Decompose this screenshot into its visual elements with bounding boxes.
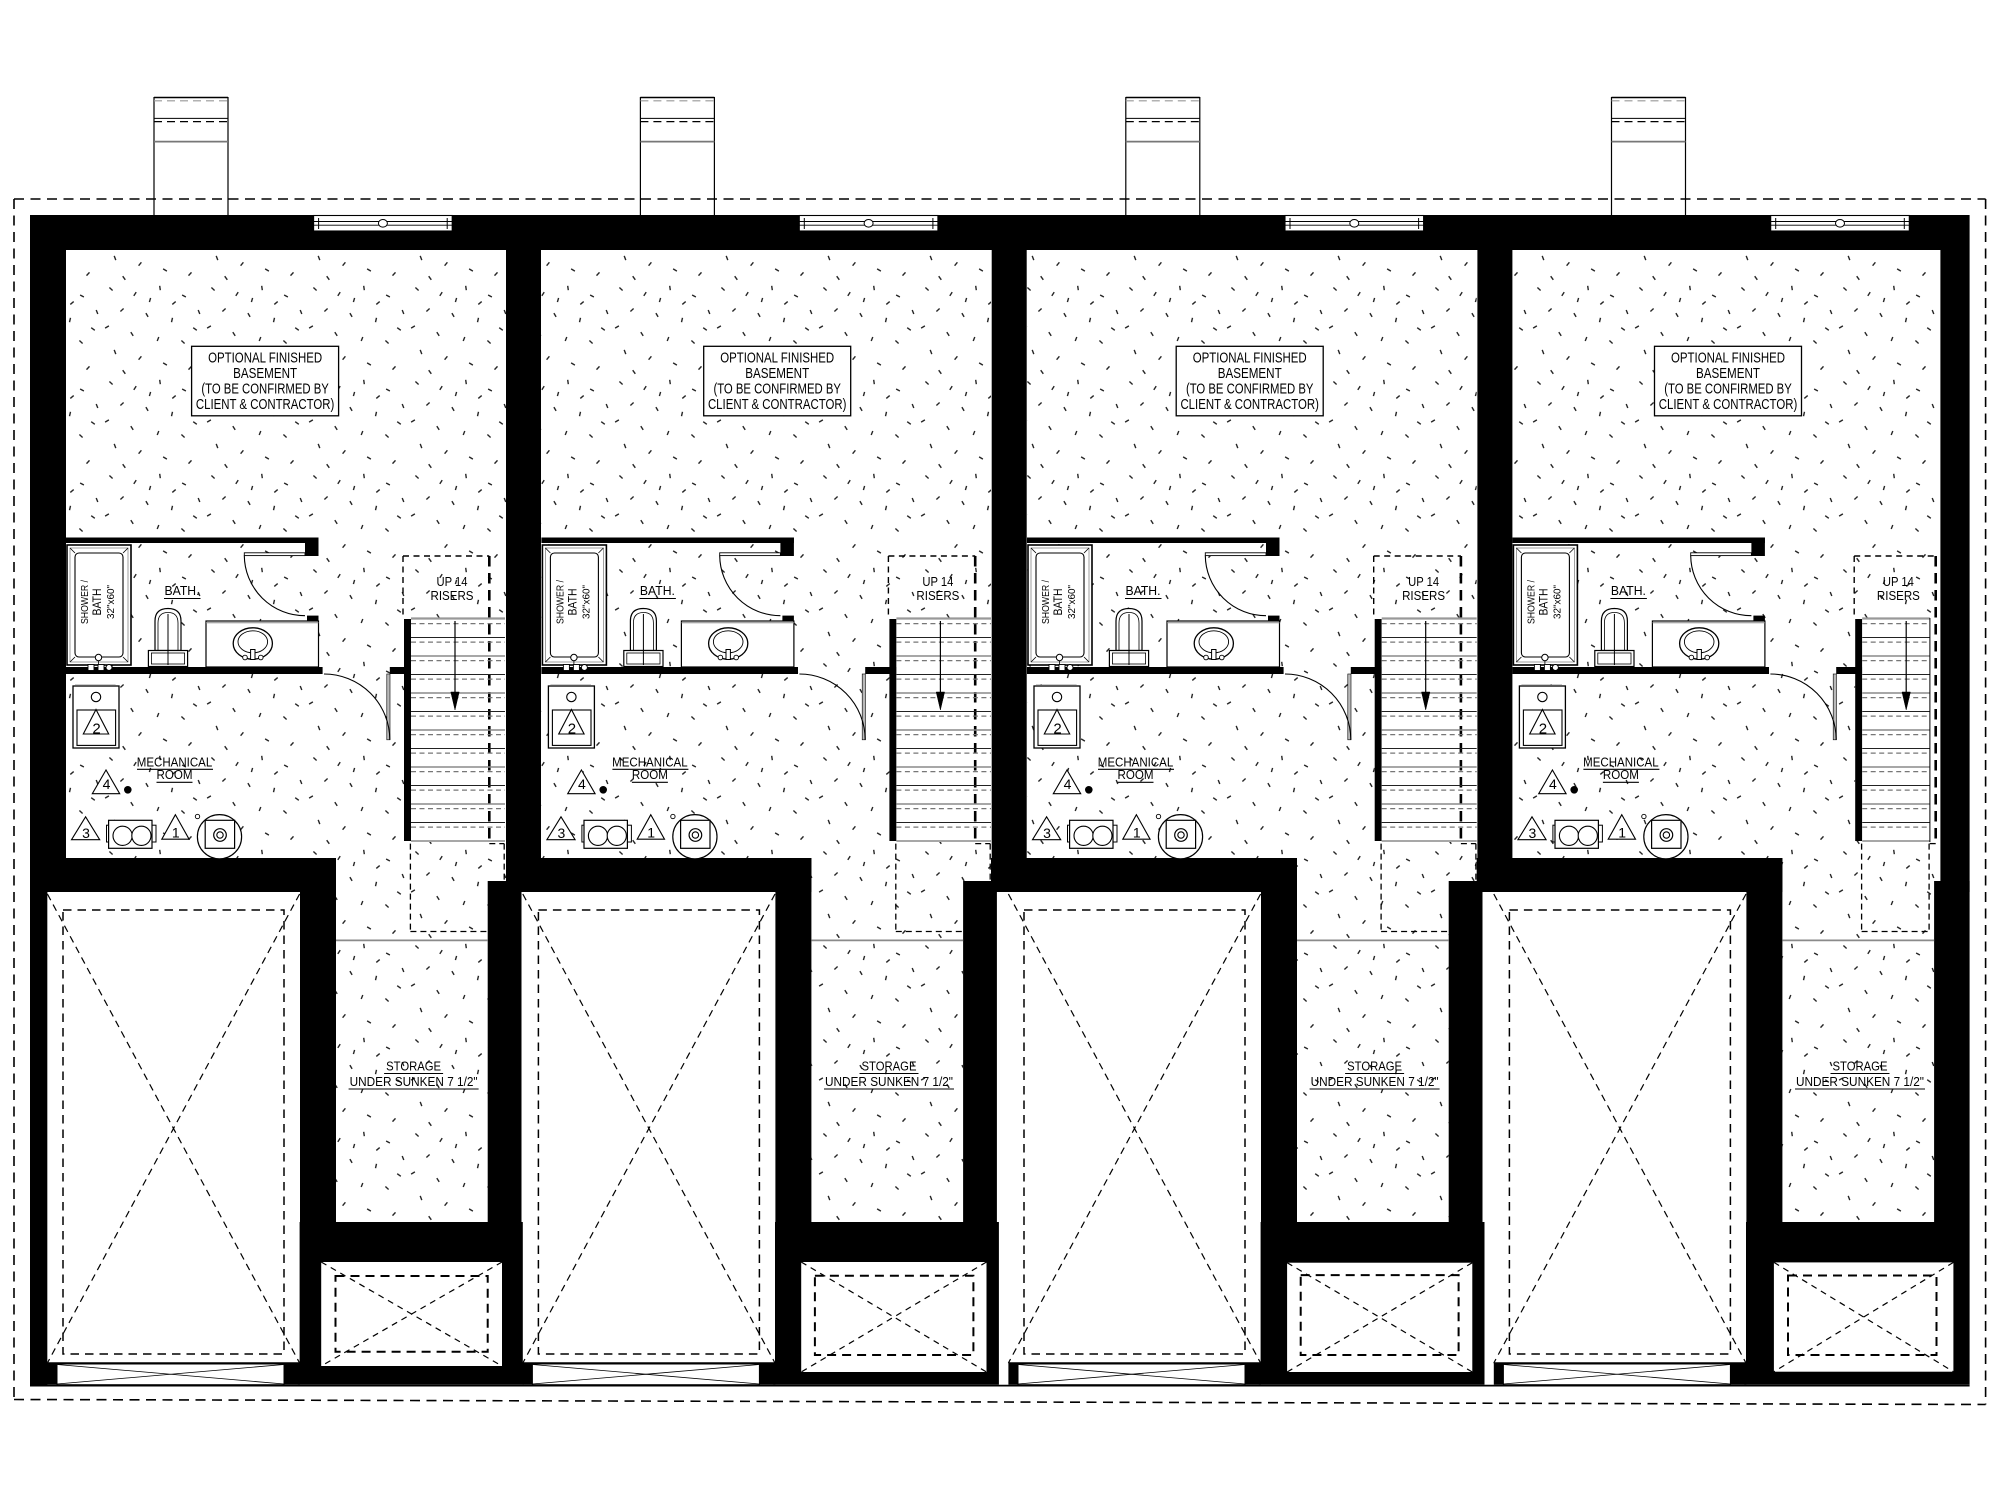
svg-text:BATH: BATH [567, 589, 579, 616]
svg-text:CLIENT & CONTRACTOR): CLIENT & CONTRACTOR) [1180, 397, 1319, 413]
svg-text:SHOWER /: SHOWER / [79, 580, 91, 624]
svg-text:RISERS: RISERS [1877, 589, 1920, 603]
svg-text:RISERS: RISERS [431, 589, 474, 603]
svg-text:ROOM: ROOM [157, 768, 193, 782]
svg-text:ROOM: ROOM [632, 768, 668, 782]
svg-text:4: 4 [1064, 776, 1072, 792]
svg-text:(TO BE CONFIRMED BY: (TO BE CONFIRMED BY [713, 382, 841, 398]
svg-text:(TO BE CONFIRMED BY: (TO BE CONFIRMED BY [1186, 382, 1314, 398]
svg-text:1: 1 [647, 825, 655, 841]
svg-text:BATH: BATH [1538, 589, 1550, 616]
svg-text:OPTIONAL FINISHED: OPTIONAL FINISHED [1193, 351, 1307, 367]
svg-text:SHOWER /: SHOWER / [1525, 580, 1537, 624]
svg-text:BATH.: BATH. [165, 584, 200, 598]
svg-text:CLIENT & CONTRACTOR): CLIENT & CONTRACTOR) [196, 397, 335, 413]
svg-text:32"x60": 32"x60" [106, 585, 117, 619]
svg-text:OPTIONAL FINISHED: OPTIONAL FINISHED [208, 351, 322, 367]
svg-text:BATH.: BATH. [1611, 584, 1646, 598]
svg-text:BATH.: BATH. [640, 584, 675, 598]
svg-text:4: 4 [103, 776, 111, 792]
svg-text:BASEMENT: BASEMENT [1218, 366, 1282, 382]
svg-text:UP 14: UP 14 [437, 575, 468, 589]
svg-text:2: 2 [568, 721, 576, 738]
svg-text:RISERS: RISERS [916, 589, 959, 603]
svg-text:CLIENT & CONTRACTOR): CLIENT & CONTRACTOR) [708, 397, 847, 413]
svg-text:UNDER SUNKEN 7 1/2": UNDER SUNKEN 7 1/2" [350, 1074, 478, 1089]
svg-text:OPTIONAL FINISHED: OPTIONAL FINISHED [720, 351, 834, 367]
svg-text:2: 2 [92, 721, 100, 738]
svg-text:(TO BE CONFIRMED BY: (TO BE CONFIRMED BY [1664, 382, 1792, 398]
svg-text:1: 1 [1618, 825, 1626, 841]
svg-text:BATH: BATH [1053, 589, 1065, 616]
svg-text:BASEMENT: BASEMENT [1696, 366, 1760, 382]
svg-text:STORAGE: STORAGE [386, 1059, 441, 1074]
svg-text:(TO BE CONFIRMED BY: (TO BE CONFIRMED BY [201, 382, 329, 398]
svg-text:STORAGE: STORAGE [862, 1059, 917, 1074]
svg-text:ROOM: ROOM [1118, 768, 1154, 782]
svg-text:STORAGE: STORAGE [1347, 1059, 1402, 1074]
svg-text:4: 4 [578, 776, 586, 792]
svg-text:CLIENT & CONTRACTOR): CLIENT & CONTRACTOR) [1659, 397, 1798, 413]
svg-text:3: 3 [558, 825, 566, 841]
svg-text:BATH: BATH [92, 589, 104, 616]
svg-text:2: 2 [1053, 721, 1061, 738]
svg-text:SHOWER /: SHOWER / [554, 580, 566, 624]
svg-text:RISERS: RISERS [1402, 589, 1445, 603]
svg-text:UNDER SUNKEN 7 1/2": UNDER SUNKEN 7 1/2" [825, 1074, 953, 1089]
svg-text:4: 4 [1549, 776, 1557, 792]
svg-text:OPTIONAL FINISHED: OPTIONAL FINISHED [1671, 351, 1785, 367]
svg-text:ROOM: ROOM [1603, 768, 1639, 782]
svg-text:32"x60": 32"x60" [581, 585, 592, 619]
svg-text:3: 3 [1043, 825, 1051, 841]
svg-text:BASEMENT: BASEMENT [233, 366, 297, 382]
svg-text:32"x60": 32"x60" [1552, 585, 1563, 619]
svg-text:3: 3 [1529, 825, 1537, 841]
svg-text:1: 1 [1133, 825, 1141, 841]
svg-text:3: 3 [82, 825, 90, 841]
svg-text:BASEMENT: BASEMENT [745, 366, 809, 382]
svg-text:UNDER SUNKEN 7 1/2": UNDER SUNKEN 7 1/2" [1311, 1074, 1439, 1089]
svg-text:STORAGE: STORAGE [1833, 1059, 1888, 1074]
svg-text:32"x60": 32"x60" [1067, 585, 1078, 619]
svg-text:1: 1 [172, 825, 180, 841]
svg-text:2: 2 [1539, 721, 1547, 738]
svg-text:UP 14: UP 14 [1883, 575, 1914, 589]
svg-text:BATH.: BATH. [1126, 584, 1161, 598]
svg-text:SHOWER /: SHOWER / [1040, 580, 1052, 624]
svg-text:UP 14: UP 14 [1408, 575, 1439, 589]
svg-text:UNDER SUNKEN 7 1/2": UNDER SUNKEN 7 1/2" [1796, 1074, 1924, 1089]
svg-text:UP 14: UP 14 [922, 575, 953, 589]
